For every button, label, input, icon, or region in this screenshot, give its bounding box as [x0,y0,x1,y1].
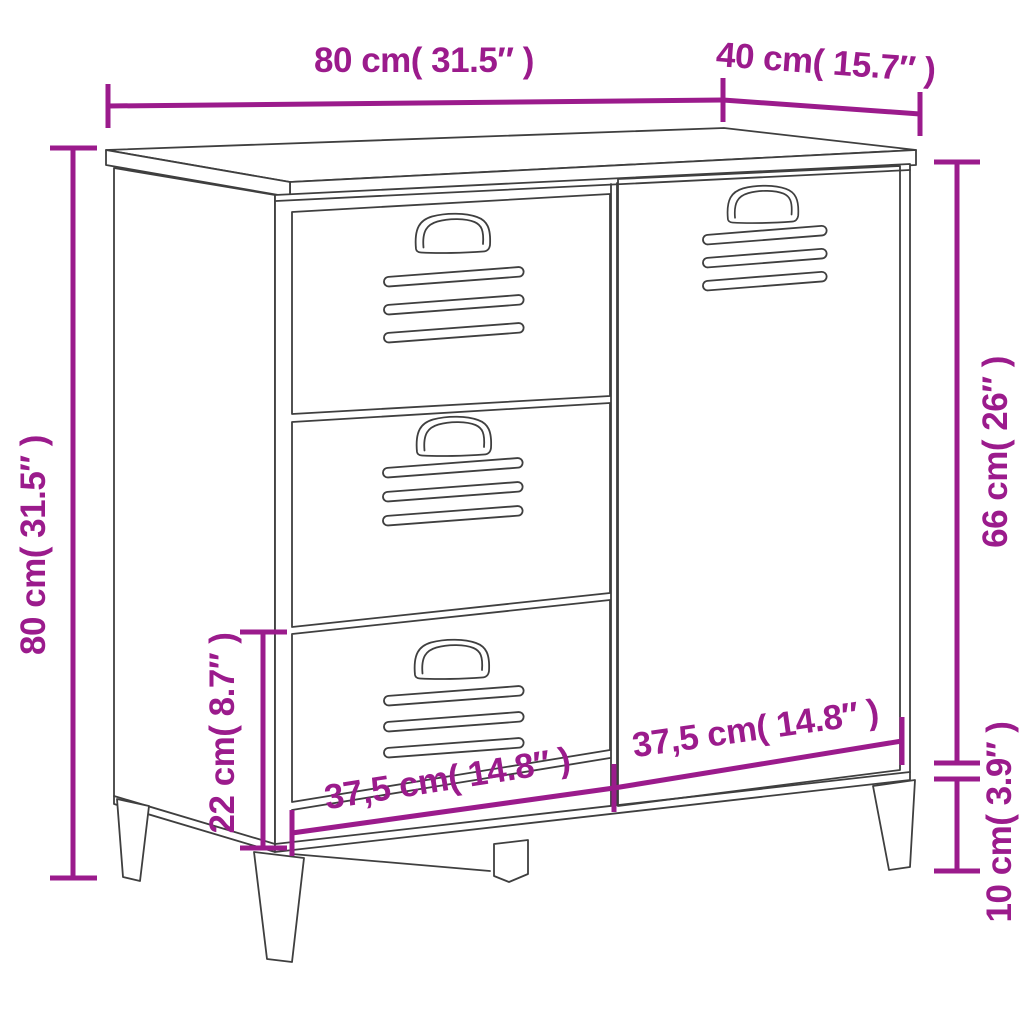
diagram-canvas: 80 cm( 31.5″ ) 40 cm( 15.7″ ) 80 cm( 31.… [0,0,1024,1024]
base-frame-line [292,854,490,871]
label-overall-height: 80 cm( 31.5″ ) [14,435,53,655]
label-door-height: 66 cm( 26″ ) [976,356,1015,548]
dimension-diagram: 80 cm( 31.5″ ) 40 cm( 15.7″ ) 80 cm( 31.… [0,0,1024,1024]
dim-top-depth [723,92,920,136]
dim-top-width [108,78,723,128]
label-leg-height: 10 cm( 3.9″ ) [980,722,1019,923]
front-face [275,164,910,852]
leg-back-left [117,799,149,881]
leg-center-back [494,840,528,882]
leg-front-right [873,780,915,870]
label-top-width: 80 cm( 31.5″ ) [314,41,534,80]
label-top-depth: 40 cm( 15.7″ ) [715,35,937,90]
leg-front-left [254,852,304,962]
label-drawer-height: 22 cm( 8.7″ ) [203,633,242,834]
dim-overall-height [50,148,97,878]
side-panel-left [114,168,275,852]
dim-leg-height [934,779,980,871]
dim-door-height [934,162,980,763]
